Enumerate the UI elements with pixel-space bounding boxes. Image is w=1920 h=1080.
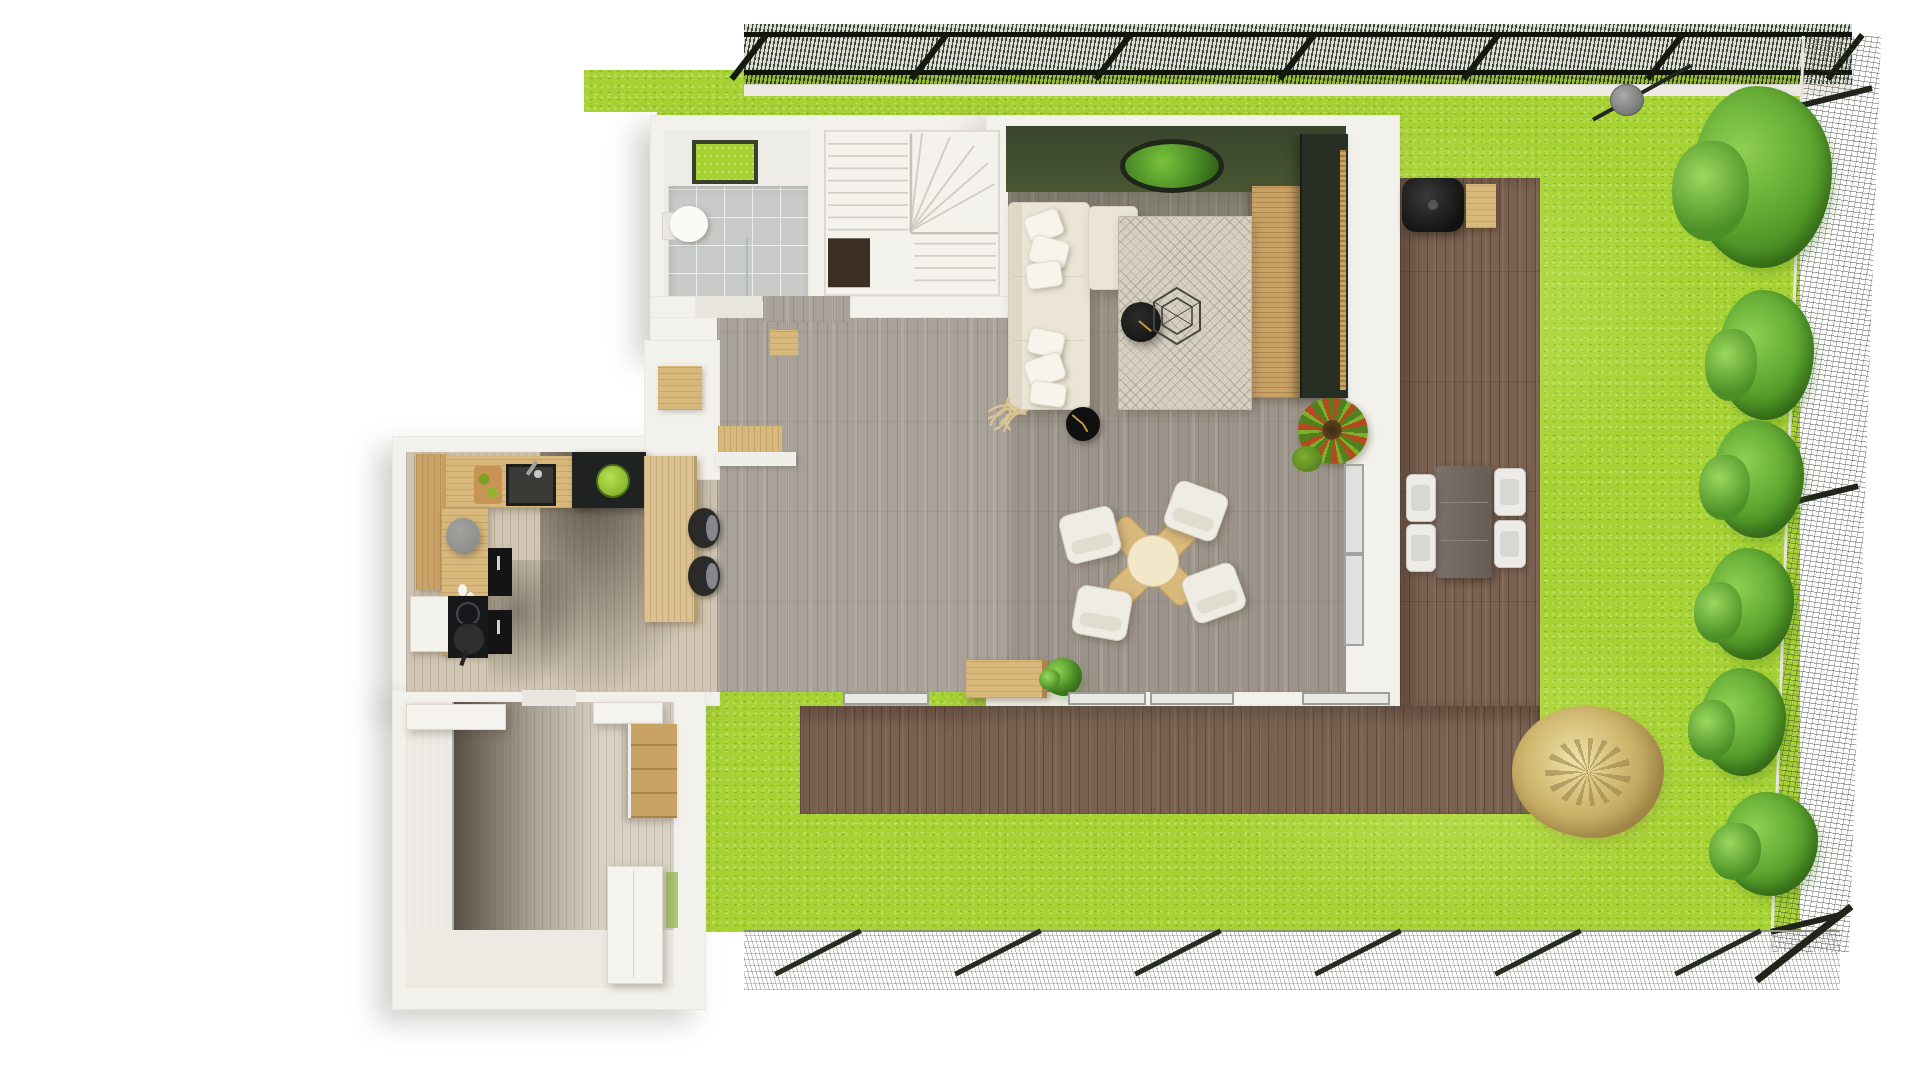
twig-decor xyxy=(984,374,1034,434)
wood-bench-bottom-wall xyxy=(966,660,1047,698)
outdoor-table-seam xyxy=(1440,502,1488,503)
outdoor-chair xyxy=(1406,474,1436,522)
gray-stool xyxy=(446,518,480,554)
grill-side-table xyxy=(1466,184,1496,228)
black-cabinet-front xyxy=(488,548,512,596)
sliding-door-track xyxy=(1150,692,1234,705)
vase-white xyxy=(458,584,467,596)
top-fence-footing xyxy=(744,84,1852,96)
fence-brace xyxy=(774,928,862,976)
shower-glass-divider xyxy=(746,238,748,300)
red-green-plant-center xyxy=(1322,420,1342,440)
cabinet-handle xyxy=(497,556,500,570)
living-floor-left xyxy=(717,318,1008,692)
bathroom-door-threshold xyxy=(696,296,762,318)
skylight-grass-window xyxy=(692,140,758,184)
glass-door-sliver xyxy=(666,872,678,928)
outdoor-chair xyxy=(1494,468,1526,516)
wardrobe xyxy=(607,866,663,984)
outdoor-table xyxy=(1436,466,1492,578)
outdoor-chair xyxy=(1406,524,1436,572)
moss-circle-decor xyxy=(1120,139,1224,193)
hall-wood-cabinet xyxy=(628,724,677,818)
floorplan-scene xyxy=(0,0,1920,1080)
cutting-board xyxy=(474,466,502,504)
tv-cabinet-wood-edge xyxy=(1340,150,1346,390)
fruit-bowl-green xyxy=(596,464,630,498)
bottom-fence xyxy=(744,930,1840,990)
outdoor-table-seam xyxy=(1440,540,1488,541)
throw-pillow xyxy=(1024,260,1063,291)
wire-hexagon-table xyxy=(1148,286,1206,346)
white-fridge xyxy=(410,596,450,652)
deck-bottom xyxy=(800,706,1540,814)
toilet-bowl xyxy=(670,206,708,242)
kitchen-hall-threshold xyxy=(522,690,576,706)
deck-right xyxy=(1400,178,1540,712)
bar-table xyxy=(644,456,697,622)
top-fence xyxy=(744,24,1852,90)
winder-staircase xyxy=(824,130,1000,296)
window-seat-bench xyxy=(718,426,782,452)
fence-brace xyxy=(1134,928,1222,976)
fence-brace xyxy=(954,928,1042,976)
fence-brace xyxy=(1494,928,1582,976)
glass-door-right xyxy=(1344,464,1364,554)
fence-brace xyxy=(1674,928,1762,976)
fence-brace xyxy=(1314,928,1402,976)
wall-shelf xyxy=(593,702,663,724)
door-mat-wood xyxy=(770,330,798,356)
dry-shrub xyxy=(1512,706,1664,838)
dining-chair xyxy=(1070,584,1134,643)
hall-floor-shadow xyxy=(452,702,602,934)
tv-wood-slat-panel xyxy=(1252,186,1300,398)
parasol-disc xyxy=(1610,84,1644,116)
cabinet-handle xyxy=(497,620,500,634)
niche-bench-wood xyxy=(658,366,702,410)
wall-bath-bottom-left xyxy=(650,296,696,318)
outdoor-chair xyxy=(1494,520,1526,568)
sliding-door-track xyxy=(1068,692,1146,705)
window-seat-ledge xyxy=(716,452,796,466)
black-cabinet-front xyxy=(488,610,512,654)
fence-rail xyxy=(744,32,1852,37)
grill-knob xyxy=(1428,200,1438,210)
console-shelf xyxy=(406,704,506,730)
plant-offshoot xyxy=(1292,446,1322,472)
frying-pan xyxy=(452,622,486,656)
sliding-door-track xyxy=(1302,692,1390,705)
glass-door-right xyxy=(1344,554,1364,646)
wardrobe-door-line xyxy=(633,870,634,978)
shower-tile-floor xyxy=(668,186,808,302)
fence-brace xyxy=(1799,85,1873,109)
bar-stool xyxy=(688,508,720,548)
wall-stairs-bottom xyxy=(850,296,1010,318)
throw-pillow xyxy=(1029,380,1068,409)
faucet-base xyxy=(534,470,542,478)
bar-stool xyxy=(688,556,720,596)
sliding-door-track xyxy=(843,692,929,705)
corridor-floor xyxy=(763,296,850,322)
